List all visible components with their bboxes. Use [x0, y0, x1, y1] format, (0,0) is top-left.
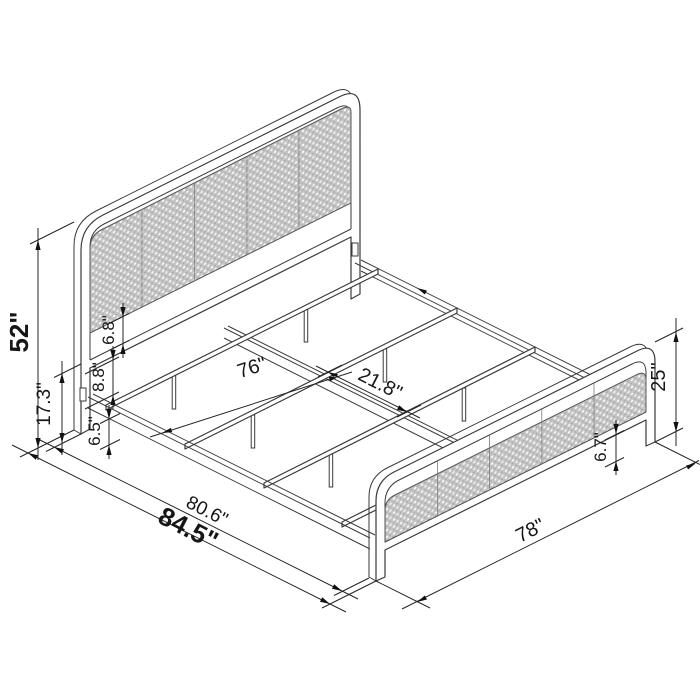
footboard: [369, 344, 655, 581]
diagram-canvas: 52" 17.3" 8.8" 6.8" 6.5" 76" 21.8" 80.6"…: [0, 0, 700, 700]
dim-label-panel-gap: 6.8": [99, 315, 118, 345]
dim-label-footboard-clearance: 6.7": [591, 432, 610, 462]
dim-label-rail-to-panel: 8.8": [89, 362, 108, 392]
bed-frame-dimension-diagram: 52" 17.3" 8.8" 6.8" 6.5" 76" 21.8" 80.6"…: [0, 0, 700, 700]
dim-label-overall-height: 52": [4, 311, 34, 352]
dim-label-overall-width: 78": [512, 515, 548, 548]
headboard-rail-bracket-left: [80, 388, 86, 401]
dim-label-slat-length: 76": [235, 353, 270, 383]
dim-label-floor-clearance: 6.5": [85, 416, 104, 446]
dim-label-footboard-height: 25": [648, 362, 670, 391]
dim-label-rail-top-height: 17.3": [34, 382, 55, 426]
headboard-rail-bracket-right: [352, 243, 358, 256]
